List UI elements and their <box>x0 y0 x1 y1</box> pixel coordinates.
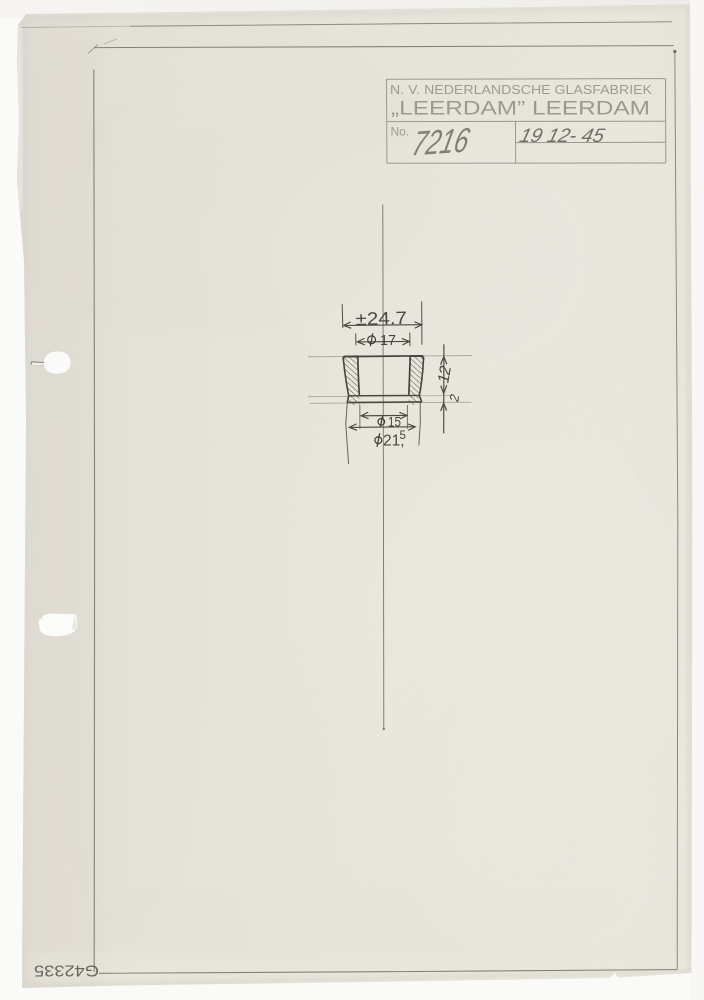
svg-text:5: 5 <box>400 430 406 442</box>
svg-text:„LEERDAM” LEERDAM: „LEERDAM” LEERDAM <box>391 98 650 120</box>
svg-text:N. V. NEDERLANDSCHE GLASFABRIE: N. V. NEDERLANDSCHE GLASFABRIEK <box>390 83 653 97</box>
svg-text:±24.7: ±24.7 <box>355 308 407 329</box>
svg-text:G42335: G42335 <box>34 962 99 979</box>
svg-text:19 12- 45: 19 12- 45 <box>517 125 607 147</box>
svg-text:17: 17 <box>380 332 396 349</box>
svg-text:7216: 7216 <box>409 122 473 164</box>
svg-text:No.: No. <box>391 125 410 139</box>
